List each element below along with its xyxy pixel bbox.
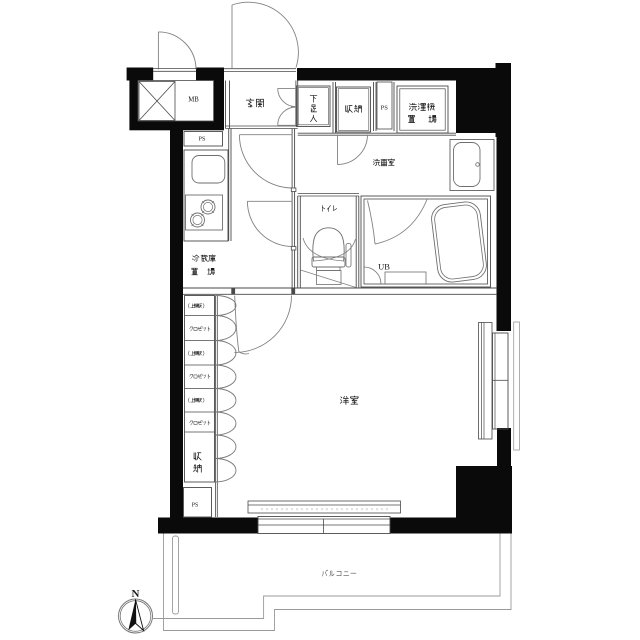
svg-text:PS: PS bbox=[199, 137, 206, 143]
svg-text:UB: UB bbox=[378, 261, 390, 271]
svg-text:PS: PS bbox=[192, 502, 198, 508]
svg-text:N: N bbox=[132, 588, 140, 600]
svg-text:PS: PS bbox=[381, 104, 389, 111]
svg-text:MB: MB bbox=[188, 96, 199, 103]
